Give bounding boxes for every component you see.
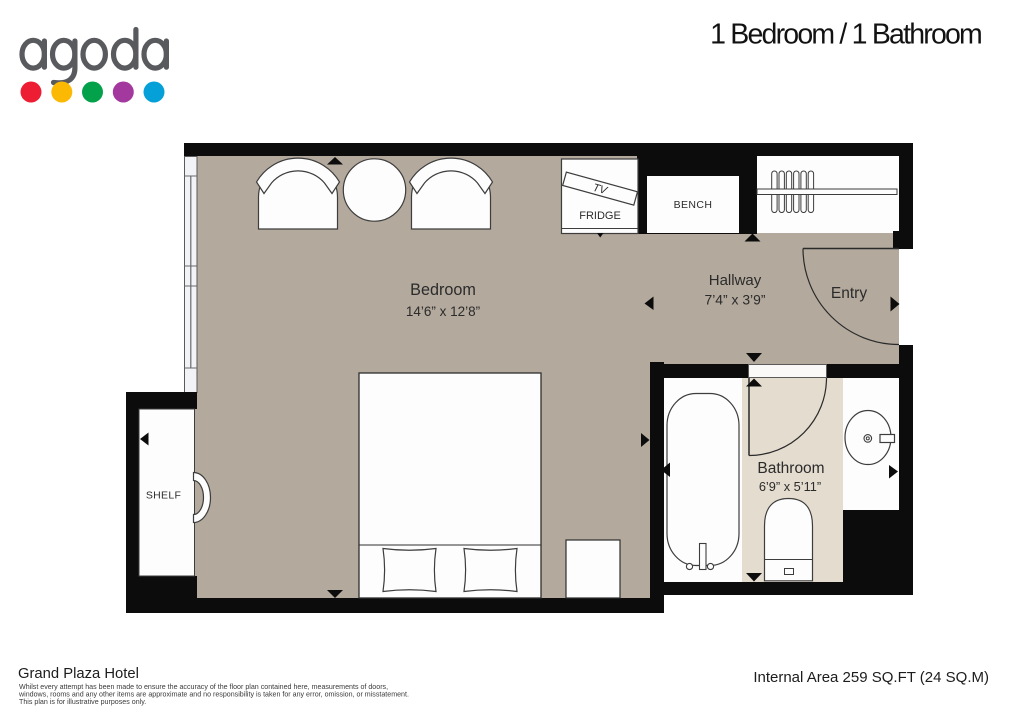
svg-text:1 Bedroom / 1 Bathroom: 1 Bedroom / 1 Bathroom: [710, 19, 981, 51]
svg-text:This plan is for illustrative: This plan is for illustrative purposes o…: [19, 698, 146, 706]
svg-text:14’6” x 12’8”: 14’6” x 12’8”: [406, 304, 480, 319]
svg-text:Internal Area 259 SQ.FT (24 SQ: Internal Area 259 SQ.FT (24 SQ.M): [753, 669, 989, 686]
svg-text:Bedroom: Bedroom: [410, 281, 476, 299]
svg-text:BENCH: BENCH: [674, 199, 713, 211]
svg-text:Bathroom: Bathroom: [757, 460, 824, 477]
svg-text:Grand Plaza Hotel: Grand Plaza Hotel: [18, 666, 139, 682]
svg-text:7’4” x 3’9”: 7’4” x 3’9”: [705, 292, 766, 308]
svg-text:FRIDGE: FRIDGE: [579, 210, 621, 222]
svg-text:SHELF: SHELF: [146, 490, 181, 502]
svg-text:6’9” x 5’11”: 6’9” x 5’11”: [759, 479, 821, 494]
svg-text:Hallway: Hallway: [709, 272, 762, 289]
svg-text:Entry: Entry: [831, 285, 867, 302]
